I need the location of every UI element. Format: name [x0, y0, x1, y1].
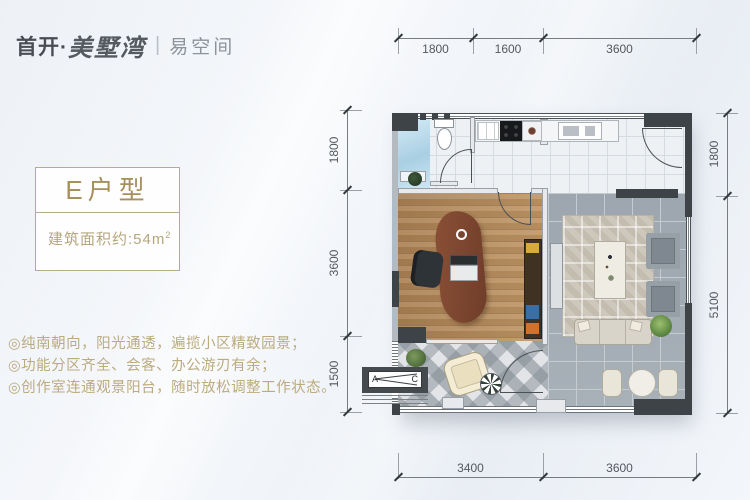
kitchen-sink: [558, 122, 602, 140]
terrace-chair-right: [658, 369, 678, 397]
dim-left-1500: 1500: [327, 344, 341, 404]
dim-right-5100: 5100: [707, 275, 721, 335]
dim-top-3600: 3600: [543, 42, 696, 56]
door-leaf-entry: [642, 128, 682, 129]
balcony-bottom-railing: [398, 406, 634, 413]
wall-left-block: [392, 271, 399, 307]
wall-left: [392, 131, 398, 341]
feature-item-2: ◎功能分区齐全、会客、办公游刃有余；: [8, 355, 338, 377]
coffee-table-decor: [604, 253, 616, 283]
terrace-table: [628, 369, 656, 397]
dim-left-1800: 1800: [327, 120, 341, 180]
kitchen-cabinet: [477, 122, 499, 140]
dim-bottom-line: [398, 477, 696, 478]
dim-top-1800: 1800: [398, 42, 473, 56]
logo-brand-script: 美墅湾: [68, 28, 146, 63]
brand-logo: 首开· 美墅湾 | 易空间: [16, 28, 235, 63]
door-leaf-balcony: [500, 392, 543, 393]
ac-label-a: A: [372, 372, 378, 386]
wall-office-living: [542, 188, 548, 345]
sill-balcony-door: [442, 397, 464, 409]
wall-office-balcony-block: [398, 327, 426, 343]
dim-bottom-3400: 3400: [398, 461, 543, 475]
feature-item-1: ◎纯南朝向，阳光通透，遍揽小区精致园景；: [8, 333, 338, 355]
dim-right-1800: 1800: [707, 124, 721, 184]
door-leaf-office: [530, 192, 531, 225]
window-top-kitchen: [476, 113, 644, 119]
wall-right-upper: [685, 127, 692, 217]
wall-office-balcony: [426, 339, 498, 344]
ac-grille: [362, 395, 428, 405]
wall-office-top-left: [398, 188, 498, 194]
bathroom-plant: [408, 172, 422, 186]
wall-corner-bottom-right: [634, 399, 692, 415]
armchair-1: [646, 233, 680, 269]
ac-unit: A C: [362, 367, 428, 393]
laptop-base: [450, 265, 478, 281]
floorplan: A C: [392, 113, 692, 415]
sill-terrace-jamb: [536, 399, 566, 413]
balcony-fan-plant: [480, 373, 502, 395]
ac-label-c: C: [412, 372, 419, 386]
bookshelf-books-blue: [526, 305, 539, 319]
dim-bottom-3600: 3600: [543, 461, 696, 475]
door-leaf-bathroom: [471, 149, 472, 183]
dim-top-line: [398, 38, 696, 39]
office-chair: [410, 249, 445, 289]
unit-type-title: E户型: [36, 168, 179, 213]
wall-corner-top-right: [644, 113, 692, 127]
logo-brand-prefix: 首开·: [16, 31, 68, 61]
hall-cabinet: [550, 243, 563, 309]
sofa-pillow-right: [629, 320, 643, 332]
window-right: [686, 217, 691, 303]
bookshelf-books-orange: [526, 323, 539, 334]
dim-top-1600: 1600: [473, 42, 543, 56]
feature-item-3: ◎创作室连通观景阳台，随时放松调整工作状态。: [8, 377, 338, 399]
unit-area-text: 建筑面积约:54m2: [36, 213, 179, 249]
feature-list: ◎纯南朝向，阳光通透，遍揽小区精致园景； ◎功能分区齐全、会客、办公游刃有余； …: [8, 333, 338, 399]
balcony-plant: [406, 349, 426, 367]
unit-area-sup: 2: [165, 230, 171, 240]
desk-badge: [456, 229, 467, 240]
logo-divider: |: [155, 34, 160, 57]
dim-left-3600: 3600: [327, 233, 341, 293]
bookshelf-books-stack: [526, 261, 539, 287]
dim-left-line: [347, 110, 348, 412]
toilet-tank: [434, 119, 454, 128]
stove-cooktop: [500, 121, 522, 141]
dim-top-guide-4: [696, 28, 697, 54]
bookshelf-books-yellow: [526, 243, 539, 253]
wok-burner: [522, 121, 542, 141]
dim-right-line: [727, 113, 728, 413]
ac-unit-inner: A C: [368, 371, 422, 388]
unit-info-panel: E户型 建筑面积约:54m2: [35, 167, 180, 271]
console-living-top: [616, 189, 678, 198]
unit-area-label: 建筑面积约:54m: [48, 231, 165, 248]
laptop-screen: [450, 255, 478, 265]
living-plant: [650, 315, 672, 337]
logo-sub-brand: 易空间: [169, 32, 235, 59]
armchair-2: [646, 281, 680, 317]
wall-corner-top-left: [392, 113, 418, 131]
terrace-chair-left: [602, 369, 622, 397]
